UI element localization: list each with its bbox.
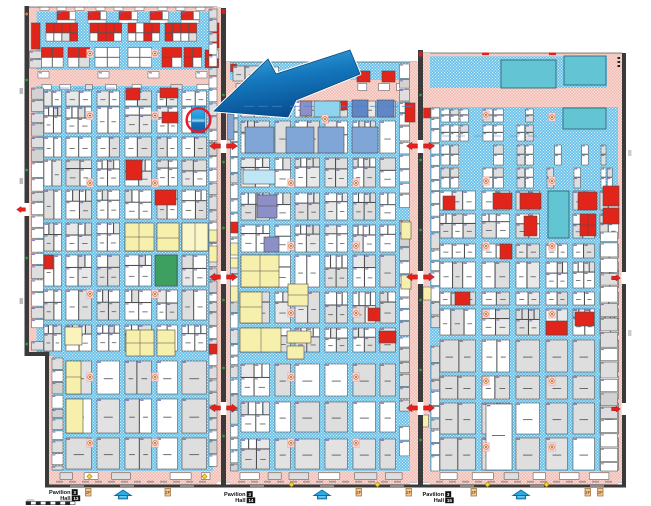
svg-text:2F: 2F (471, 490, 476, 495)
svg-text:Hall: Hall (434, 498, 445, 504)
svg-text:3: 3 (248, 492, 251, 497)
svg-text:3: 3 (447, 492, 450, 497)
svg-text:2F: 2F (165, 490, 170, 495)
svg-text:Pavilion: Pavilion (423, 492, 445, 498)
svg-text:13: 13 (73, 496, 79, 501)
svg-text:Pavilion: Pavilion (224, 492, 246, 498)
svg-text:2F: 2F (585, 490, 590, 495)
svg-text:3: 3 (73, 490, 76, 495)
svg-text:Pavilion: Pavilion (49, 490, 71, 496)
svg-text:2F: 2F (406, 490, 411, 495)
svg-text:2F: 2F (598, 490, 603, 495)
svg-text:2F: 2F (86, 490, 91, 495)
svg-text:Hall: Hall (235, 498, 246, 504)
svg-text:15: 15 (447, 498, 453, 503)
svg-text:2F: 2F (356, 490, 361, 495)
svg-text:14: 14 (248, 498, 254, 503)
